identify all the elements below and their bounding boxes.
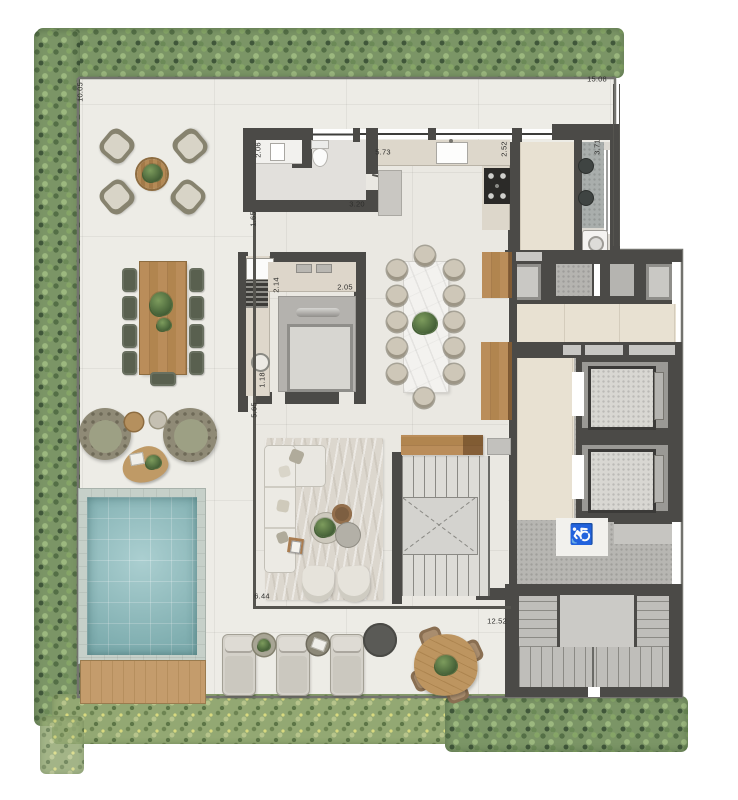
dimension-label: 2.06 <box>254 142 263 157</box>
dimension-label: 3.71 <box>593 139 602 154</box>
floor-plan: ♿ <box>0 0 738 800</box>
dimension-label: 12.52 <box>487 617 507 626</box>
dimension-label: 15.08 <box>587 75 607 84</box>
dimension-labels-layer: 10.0515.082.065.733.202.523.711.652.142.… <box>0 0 738 800</box>
dimension-label: 6.44 <box>254 592 269 601</box>
dimension-label: 2.52 <box>500 141 509 156</box>
dimension-label: 5.65 <box>250 402 259 417</box>
dimension-label: 2.05 <box>337 283 352 292</box>
dimension-label: 2.14 <box>272 277 281 292</box>
dimension-label: 1.18 <box>258 372 267 387</box>
dimension-label: 10.05 <box>76 82 85 102</box>
dimension-label: 3.20 <box>349 200 364 209</box>
dimension-label: 1.65 <box>249 211 258 226</box>
dimension-label: 5.73 <box>375 148 390 157</box>
